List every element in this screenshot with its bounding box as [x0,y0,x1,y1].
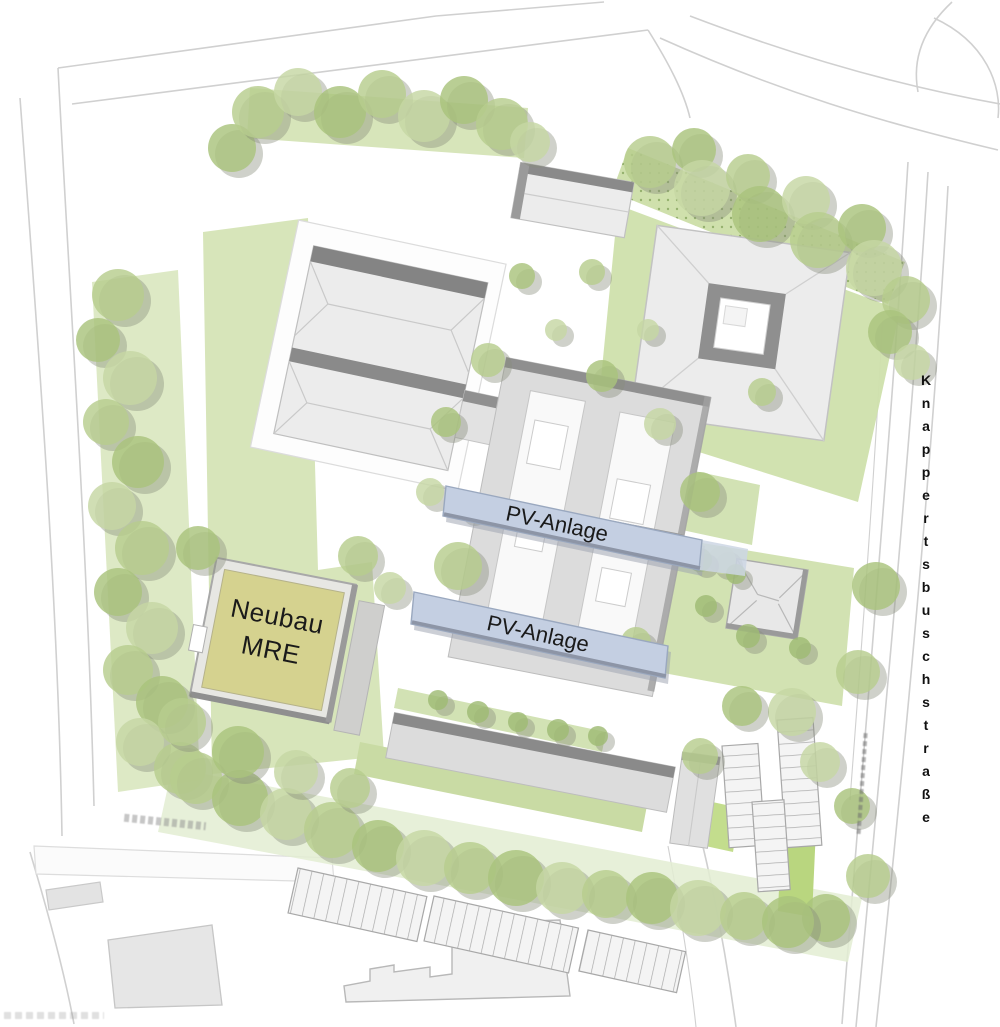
tree [720,892,768,940]
tree [682,738,718,774]
tree [431,407,461,437]
tree [674,160,730,216]
tree [488,850,544,906]
tree [176,526,220,570]
tree [722,686,762,726]
tree [444,842,496,894]
tree [834,788,870,824]
tree [467,701,489,723]
tree [789,637,811,659]
tree [510,122,550,162]
tree [338,536,378,576]
tree [644,408,676,440]
tree [115,521,169,575]
tree [670,880,726,936]
tree [586,360,618,392]
tree [428,690,448,710]
tree [624,136,676,188]
site-plan-drawing [0,0,1000,1027]
tree [416,478,444,506]
site-plan: Neubau MRE PV-Anlage PV-Anlage Knapperts… [0,0,1000,1027]
tree [846,854,890,898]
tree [762,896,814,948]
tree [76,318,120,362]
tree [545,319,567,341]
tree [852,562,900,610]
tree [836,650,880,694]
tree [547,719,569,741]
tree [103,351,157,405]
pv-strip-1-tail [699,540,748,576]
tree [536,862,588,914]
tree [790,212,846,268]
tree [579,259,605,285]
tree [800,742,840,782]
building-north [511,163,634,238]
tree [92,269,144,321]
tree [748,378,776,406]
tree [396,830,452,886]
tree [695,595,717,617]
tree [508,712,528,732]
tree [637,319,659,341]
tree [732,186,788,242]
tree [112,436,164,488]
tree [736,624,760,648]
tree [509,263,535,289]
tree [680,472,720,512]
tree [212,726,264,778]
building-southwest [46,882,222,1008]
tree [582,870,630,918]
tree [158,698,206,746]
tree [88,482,136,530]
tree [588,726,608,746]
tree [768,688,816,736]
tree [274,750,318,794]
tree [352,820,404,872]
tree [626,872,678,924]
tree [471,343,505,377]
tree [330,768,370,808]
tree [374,572,406,604]
tree [83,399,129,445]
tree [894,344,930,380]
tree [434,542,482,590]
